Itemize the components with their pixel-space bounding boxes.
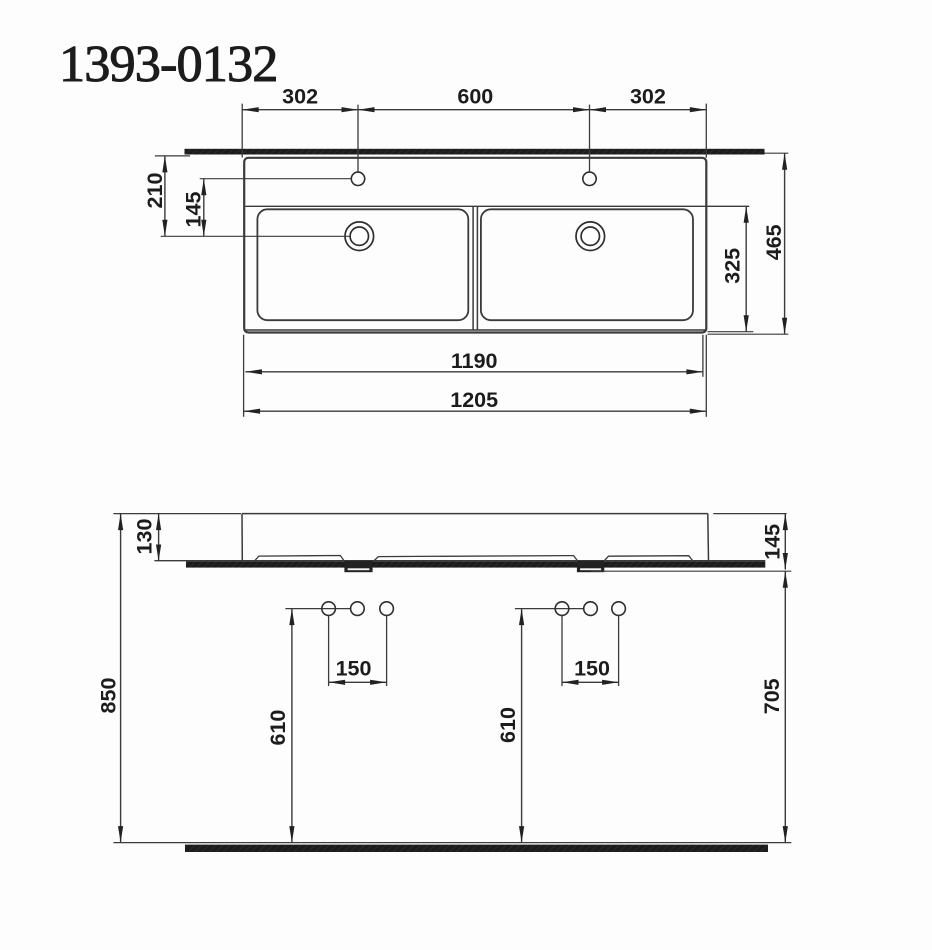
svg-text:1205: 1205 [450,388,498,412]
svg-text:150: 150 [574,656,610,680]
svg-text:610: 610 [266,710,290,746]
svg-text:1393-0132: 1393-0132 [59,35,278,93]
svg-text:610: 610 [496,707,520,743]
svg-text:325: 325 [720,248,744,284]
svg-text:1190: 1190 [451,349,498,373]
svg-text:850: 850 [97,678,121,714]
svg-text:145: 145 [760,524,784,560]
svg-text:465: 465 [762,224,786,260]
svg-text:302: 302 [282,84,318,108]
svg-text:705: 705 [760,678,784,714]
svg-text:210: 210 [143,173,167,209]
svg-text:600: 600 [457,84,493,108]
svg-text:130: 130 [133,519,157,555]
svg-text:302: 302 [630,84,666,108]
svg-text:150: 150 [336,656,372,680]
svg-text:145: 145 [181,192,205,228]
